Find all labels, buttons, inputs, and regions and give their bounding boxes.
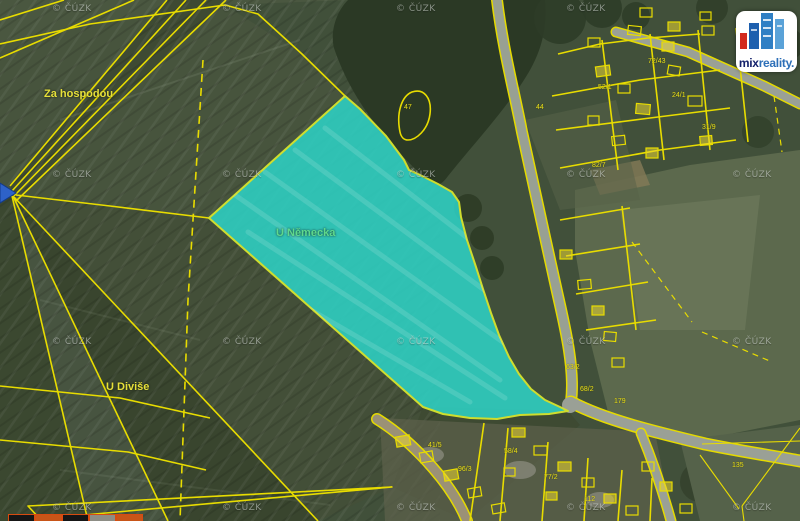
- logo-wordmark: mixreality.: [739, 58, 794, 69]
- scale-bar-segment: [62, 514, 89, 521]
- logo-buildings-icon: [736, 11, 792, 51]
- scale-bar-segment: [35, 514, 62, 521]
- scale-bar-segment: [8, 514, 35, 521]
- scale-bar: [8, 514, 143, 521]
- logo-word-reality: reality.: [759, 56, 794, 70]
- map-svg[interactable]: [0, 0, 800, 521]
- scale-bar-segment: [116, 514, 143, 521]
- mixreality-logo: mixreality.: [736, 11, 797, 72]
- logo-word-mix: mix: [739, 56, 759, 70]
- map-viewport[interactable]: Za hospodouU NěmeckaU Diviše© ČÚZK© ČÚZK…: [0, 0, 800, 521]
- scale-bar-segment: [89, 514, 116, 521]
